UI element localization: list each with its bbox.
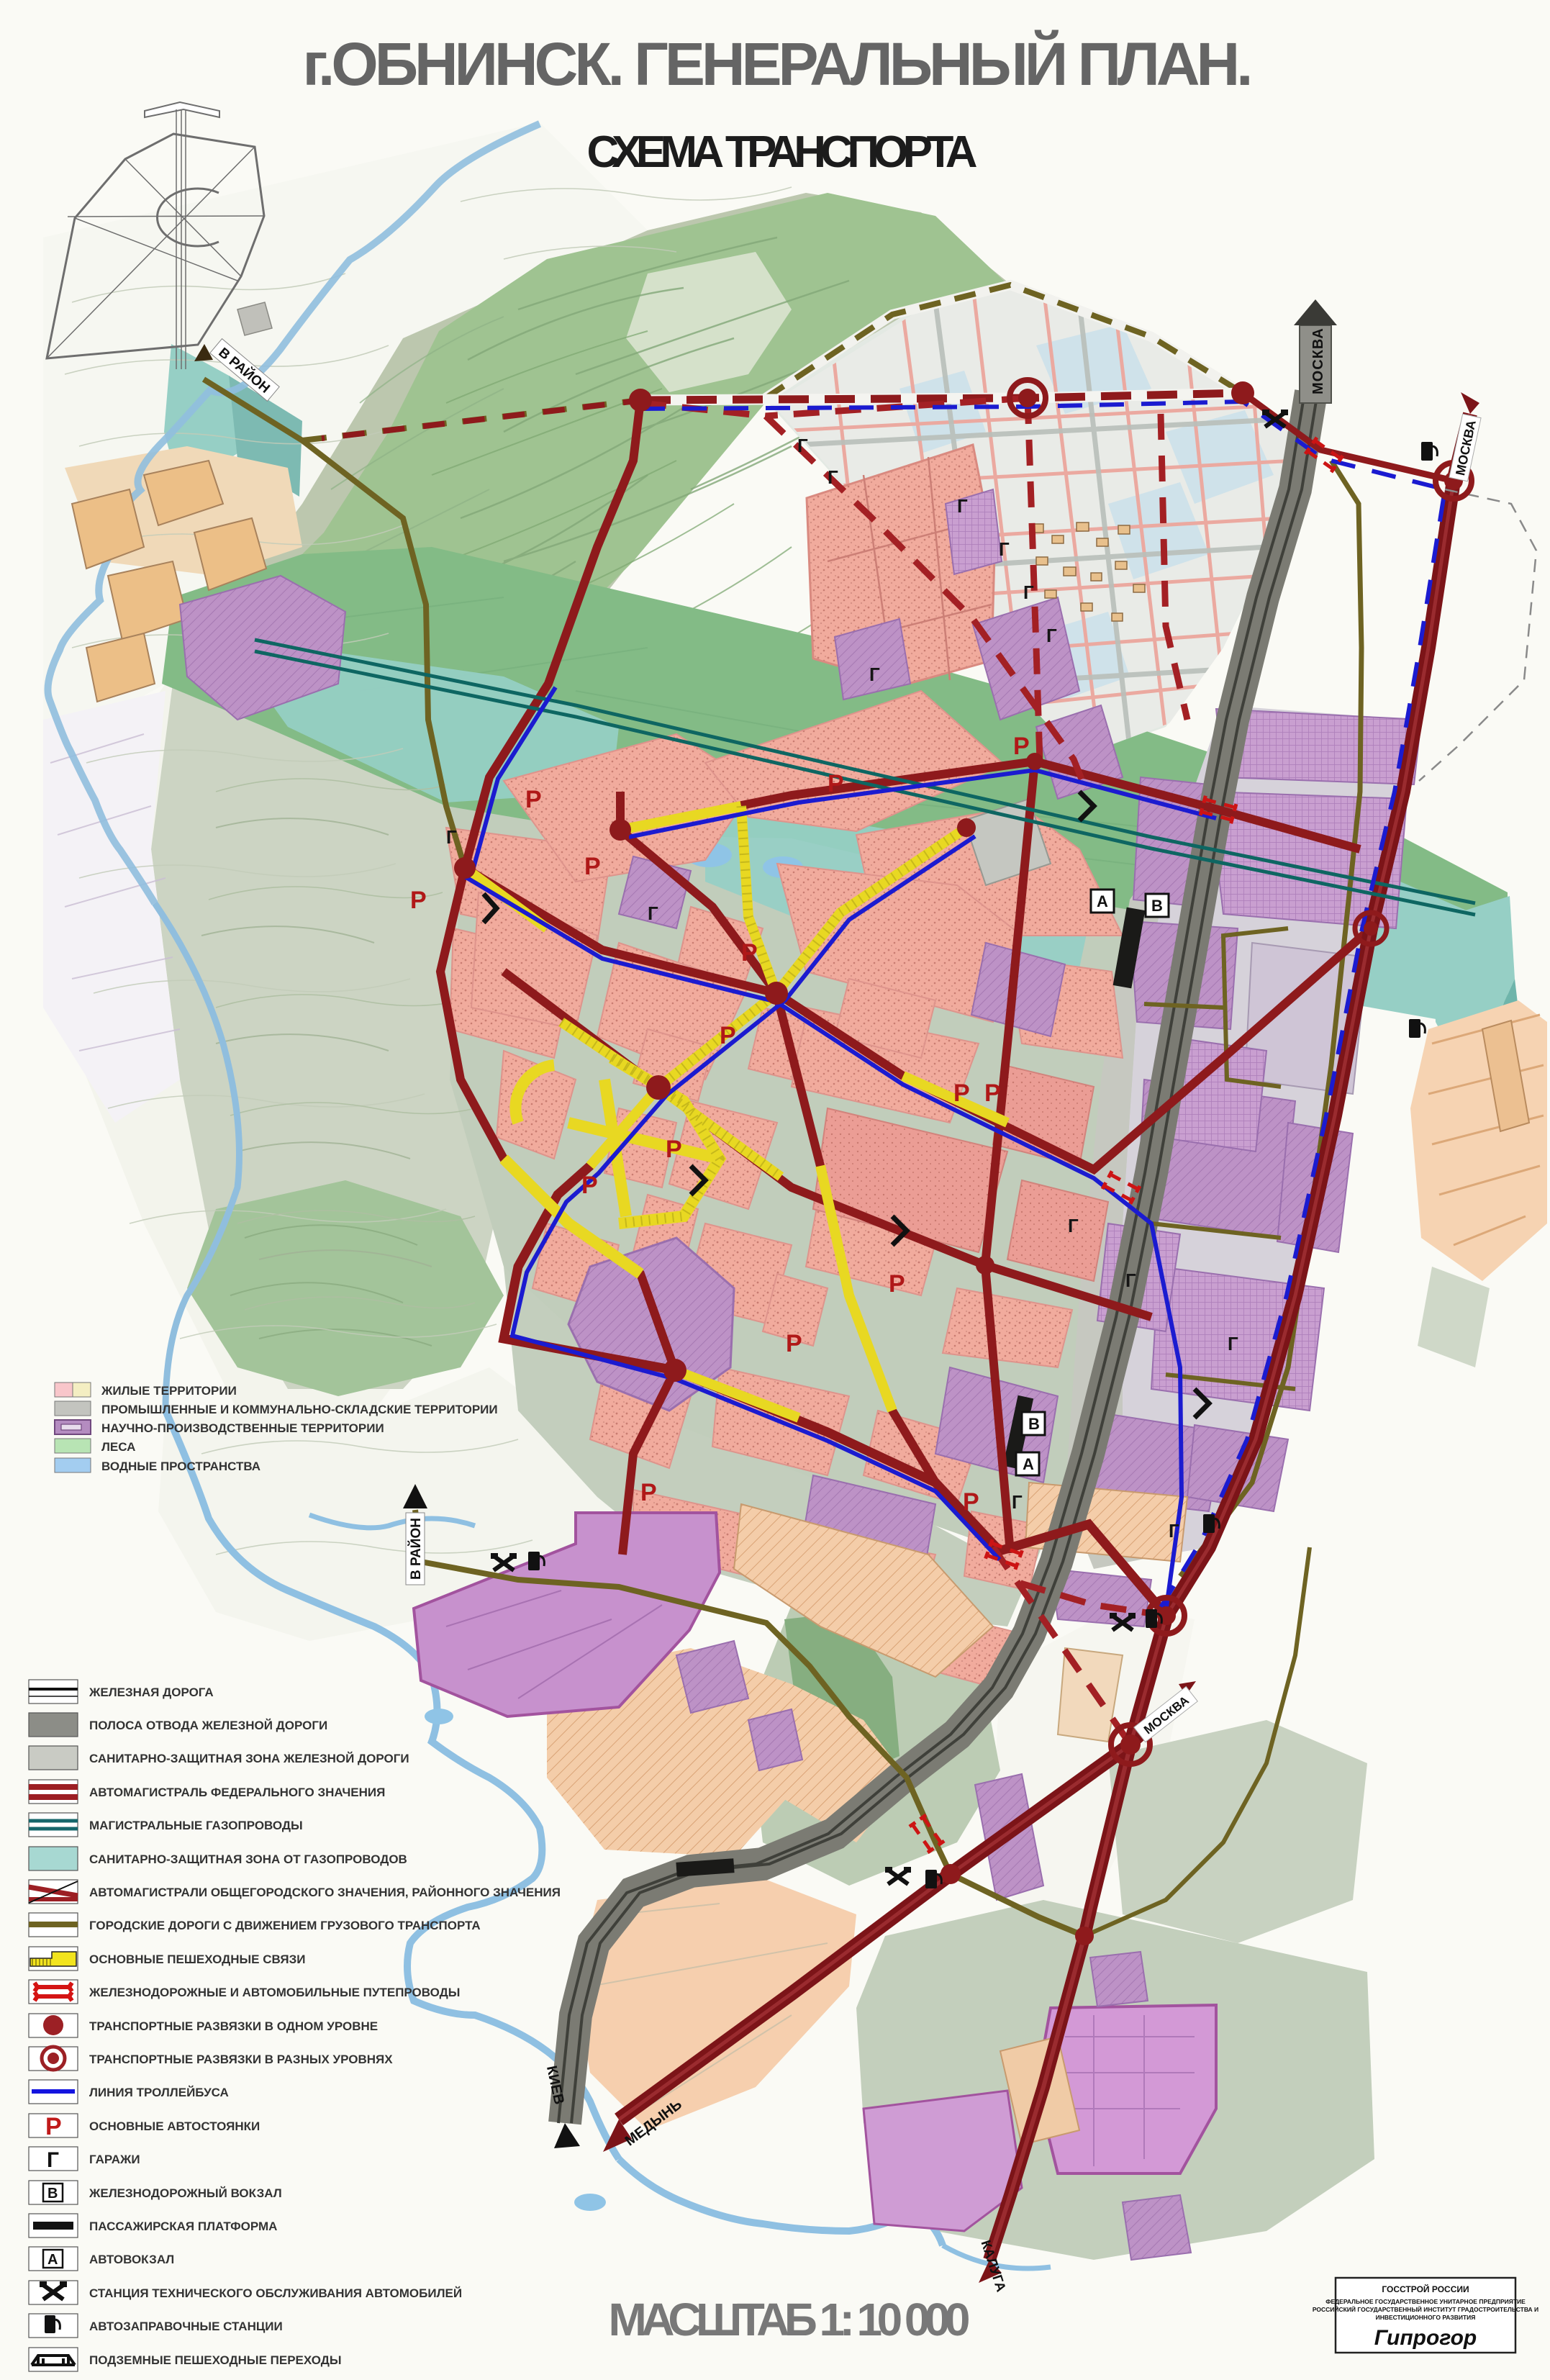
svg-text:Р: Р — [581, 1172, 598, 1199]
svg-text:Р: Р — [666, 1136, 682, 1163]
svg-text:Р: Р — [963, 1488, 979, 1516]
svg-text:Г: Г — [446, 826, 457, 848]
svg-text:ЛЕСА: ЛЕСА — [101, 1440, 135, 1454]
svg-text:АВТОМАГИСТРАЛЬ ФЕДЕРАЛЬНОГО ЗН: АВТОМАГИСТРАЛЬ ФЕДЕРАЛЬНОГО ЗНАЧЕНИЯ — [89, 1786, 385, 1799]
svg-text:Р: Р — [1013, 733, 1030, 760]
svg-text:В: В — [1028, 1415, 1040, 1433]
svg-text:г.ОБНИНСК. ГЕНЕРАЛЬНЫЙ ПЛАН.: г.ОБНИНСК. ГЕНЕРАЛЬНЫЙ ПЛАН. — [303, 30, 1256, 98]
svg-text:ГАРАЖИ: ГАРАЖИ — [89, 2153, 140, 2166]
svg-text:МАСШТАБ 1: 10 000: МАСШТАБ 1: 10 000 — [609, 2294, 972, 2345]
svg-text:Г: Г — [1169, 1520, 1179, 1542]
svg-text:А: А — [47, 2252, 58, 2268]
svg-text:Г: Г — [1125, 1270, 1136, 1291]
svg-text:Г: Г — [1012, 1491, 1023, 1513]
svg-text:МОСКВА: МОСКВА — [1310, 327, 1326, 394]
svg-text:ИНВЕСТИЦИОННОГО РАЗВИТИЯ: ИНВЕСТИЦИОННОГО РАЗВИТИЯ — [1376, 2314, 1476, 2321]
svg-text:САНИТАРНО-ЗАЩИТНАЯ ЗОНА ОТ ГАЗ: САНИТАРНО-ЗАЩИТНАЯ ЗОНА ОТ ГАЗОПРОВОДОВ — [89, 1852, 407, 1866]
svg-text:В: В — [47, 2186, 58, 2202]
svg-text:Р: Р — [984, 1080, 1001, 1107]
svg-text:ЖЕЛЕЗНОДОРОЖНЫЕ И АВТОМОБИЛЬНЫ: ЖЕЛЕЗНОДОРОЖНЫЕ И АВТОМОБИЛЬНЫЕ ПУТЕПРОВ… — [89, 1986, 460, 1999]
svg-text:В: В — [1151, 897, 1163, 915]
svg-text:Г: Г — [869, 664, 880, 685]
svg-text:А: А — [1023, 1455, 1034, 1473]
svg-text:ГОРОДСКИЕ ДОРОГИ С ДВИЖЕНИЕМ Г: ГОРОДСКИЕ ДОРОГИ С ДВИЖЕНИЕМ ГРУЗОВОГО Т… — [89, 1919, 481, 1932]
svg-text:АВТОВОКЗАЛ: АВТОВОКЗАЛ — [89, 2253, 174, 2266]
svg-text:ОСНОВНЫЕ АВТОСТОЯНКИ: ОСНОВНЫЕ АВТОСТОЯНКИ — [89, 2119, 260, 2133]
svg-text:Г: Г — [1023, 582, 1034, 603]
svg-text:Р: Р — [786, 1330, 802, 1357]
svg-text:ТРАНСПОРТНЫЕ РАЗВЯЗКИ В РАЗНЫХ: ТРАНСПОРТНЫЕ РАЗВЯЗКИ В РАЗНЫХ УРОВНЯХ — [89, 2053, 393, 2066]
svg-text:СТАНЦИЯ ТЕХНИЧЕСКОГО ОБСЛУЖИВА: СТАНЦИЯ ТЕХНИЧЕСКОГО ОБСЛУЖИВАНИЯ АВТОМО… — [89, 2286, 462, 2300]
svg-text:Г: Г — [957, 495, 968, 517]
svg-text:ЖЕЛЕЗНОДОРОЖНЫЙ ВОКЗАЛ: ЖЕЛЕЗНОДОРОЖНЫЙ ВОКЗАЛ — [89, 2186, 282, 2200]
svg-text:ВОДНЫЕ ПРОСТРАНСТВА: ВОДНЫЕ ПРОСТРАНСТВА — [101, 1460, 260, 1473]
svg-text:ПАССАЖИРСКАЯ ПЛАТФОРМА: ПАССАЖИРСКАЯ ПЛАТФОРМА — [89, 2220, 277, 2233]
svg-text:ЛИНИЯ ТРОЛЛЕЙБУСА: ЛИНИЯ ТРОЛЛЕЙБУСА — [89, 2086, 229, 2099]
svg-text:А: А — [1097, 892, 1108, 910]
svg-text:Г: Г — [999, 538, 1010, 560]
svg-text:Р: Р — [953, 1080, 970, 1107]
svg-text:Р: Р — [410, 887, 427, 914]
svg-text:ТРАНСПОРТНЫЕ РАЗВЯЗКИ В ОДНОМ: ТРАНСПОРТНЫЕ РАЗВЯЗКИ В ОДНОМ УРОВНЕ — [89, 2019, 378, 2033]
svg-text:Р: Р — [720, 1022, 736, 1049]
svg-text:Г: Г — [648, 902, 658, 924]
svg-text:ПРОМЫШЛЕННЫЕ И КОММУНАЛЬНО-СКЛ: ПРОМЫШЛЕННЫЕ И КОММУНАЛЬНО-СКЛАДСКИЕ ТЕР… — [101, 1403, 498, 1416]
svg-text:Р: Р — [584, 853, 601, 880]
svg-text:МАГИСТРАЛЬНЫЕ ГАЗОПРОВОДЫ: МАГИСТРАЛЬНЫЕ ГАЗОПРОВОДЫ — [89, 1819, 303, 1832]
svg-text:В РАЙОН: В РАЙОН — [408, 1518, 424, 1580]
svg-text:АВТОЗАПРАВОЧНЫЕ СТАНЦИИ: АВТОЗАПРАВОЧНЫЕ СТАНЦИИ — [89, 2320, 283, 2333]
svg-text:ПОЛОСА ОТВОДА ЖЕЛЕЗНОЙ ДОРОГИ: ПОЛОСА ОТВОДА ЖЕЛЕЗНОЙ ДОРОГИ — [89, 1719, 327, 1732]
svg-text:Г: Г — [1068, 1215, 1079, 1236]
svg-text:САНИТАРНО-ЗАЩИТНАЯ ЗОНА ЖЕЛЕЗН: САНИТАРНО-ЗАЩИТНАЯ ЗОНА ЖЕЛЕЗНОЙ ДОРОГИ — [89, 1752, 409, 1765]
svg-text:ПОДЗЕМНЫЕ ПЕШЕХОДНЫЕ ПЕРЕХОДЫ: ПОДЗЕМНЫЕ ПЕШЕХОДНЫЕ ПЕРЕХОДЫ — [89, 2353, 342, 2367]
svg-text:ЖИЛЫЕ ТЕРРИТОРИИ: ЖИЛЫЕ ТЕРРИТОРИИ — [101, 1384, 237, 1398]
svg-text:Г: Г — [1228, 1333, 1238, 1354]
svg-text:НАУЧНО-ПРОИЗВОДСТВЕННЫЕ ТЕРРИТ: НАУЧНО-ПРОИЗВОДСТВЕННЫЕ ТЕРРИТОРИИ — [101, 1421, 384, 1435]
svg-text:Р: Р — [45, 2113, 62, 2140]
svg-text:Р: Р — [889, 1270, 905, 1298]
svg-text:ФЕДЕРАЛЬНОЕ ГОСУДАРСТВЕННОЕ УН: ФЕДЕРАЛЬНОЕ ГОСУДАРСТВЕННОЕ УНИТАРНОЕ ПР… — [1325, 2298, 1526, 2305]
svg-text:Г: Г — [1046, 625, 1057, 646]
svg-text:Р: Р — [640, 1479, 657, 1506]
svg-text:АВТОМАГИСТРАЛИ ОБЩЕГОРОДСКОГО: АВТОМАГИСТРАЛИ ОБЩЕГОРОДСКОГО ЗНАЧЕНИЯ, … — [89, 1886, 561, 1899]
svg-text:Р: Р — [828, 770, 844, 797]
svg-text:Г: Г — [797, 435, 808, 456]
svg-text:Гипрогор: Гипрогор — [1374, 2326, 1477, 2350]
svg-text:ЖЕЛЕЗНАЯ ДОРОГА: ЖЕЛЕЗНАЯ ДОРОГА — [89, 1686, 214, 1699]
svg-text:ОСНОВНЫЕ ПЕШЕХОДНЫЕ СВЯЗИ: ОСНОВНЫЕ ПЕШЕХОДНЫЕ СВЯЗИ — [89, 1953, 305, 1966]
svg-text:ГОССТРОЙ РОССИИ: ГОССТРОЙ РОССИИ — [1382, 2284, 1469, 2294]
svg-text:Г: Г — [47, 2148, 59, 2172]
svg-text:СХЕМА ТРАНСПОРТА: СХЕМА ТРАНСПОРТА — [587, 127, 979, 177]
svg-text:Г: Г — [828, 466, 838, 488]
svg-text:Р: Р — [741, 939, 758, 967]
svg-text:РОССИЙСКИЙ ГОСУДАРСТВЕННЫЙ ИНС: РОССИЙСКИЙ ГОСУДАРСТВЕННЫЙ ИНСТИТУТ ГРАД… — [1313, 2305, 1538, 2313]
svg-text:Р: Р — [525, 786, 542, 813]
